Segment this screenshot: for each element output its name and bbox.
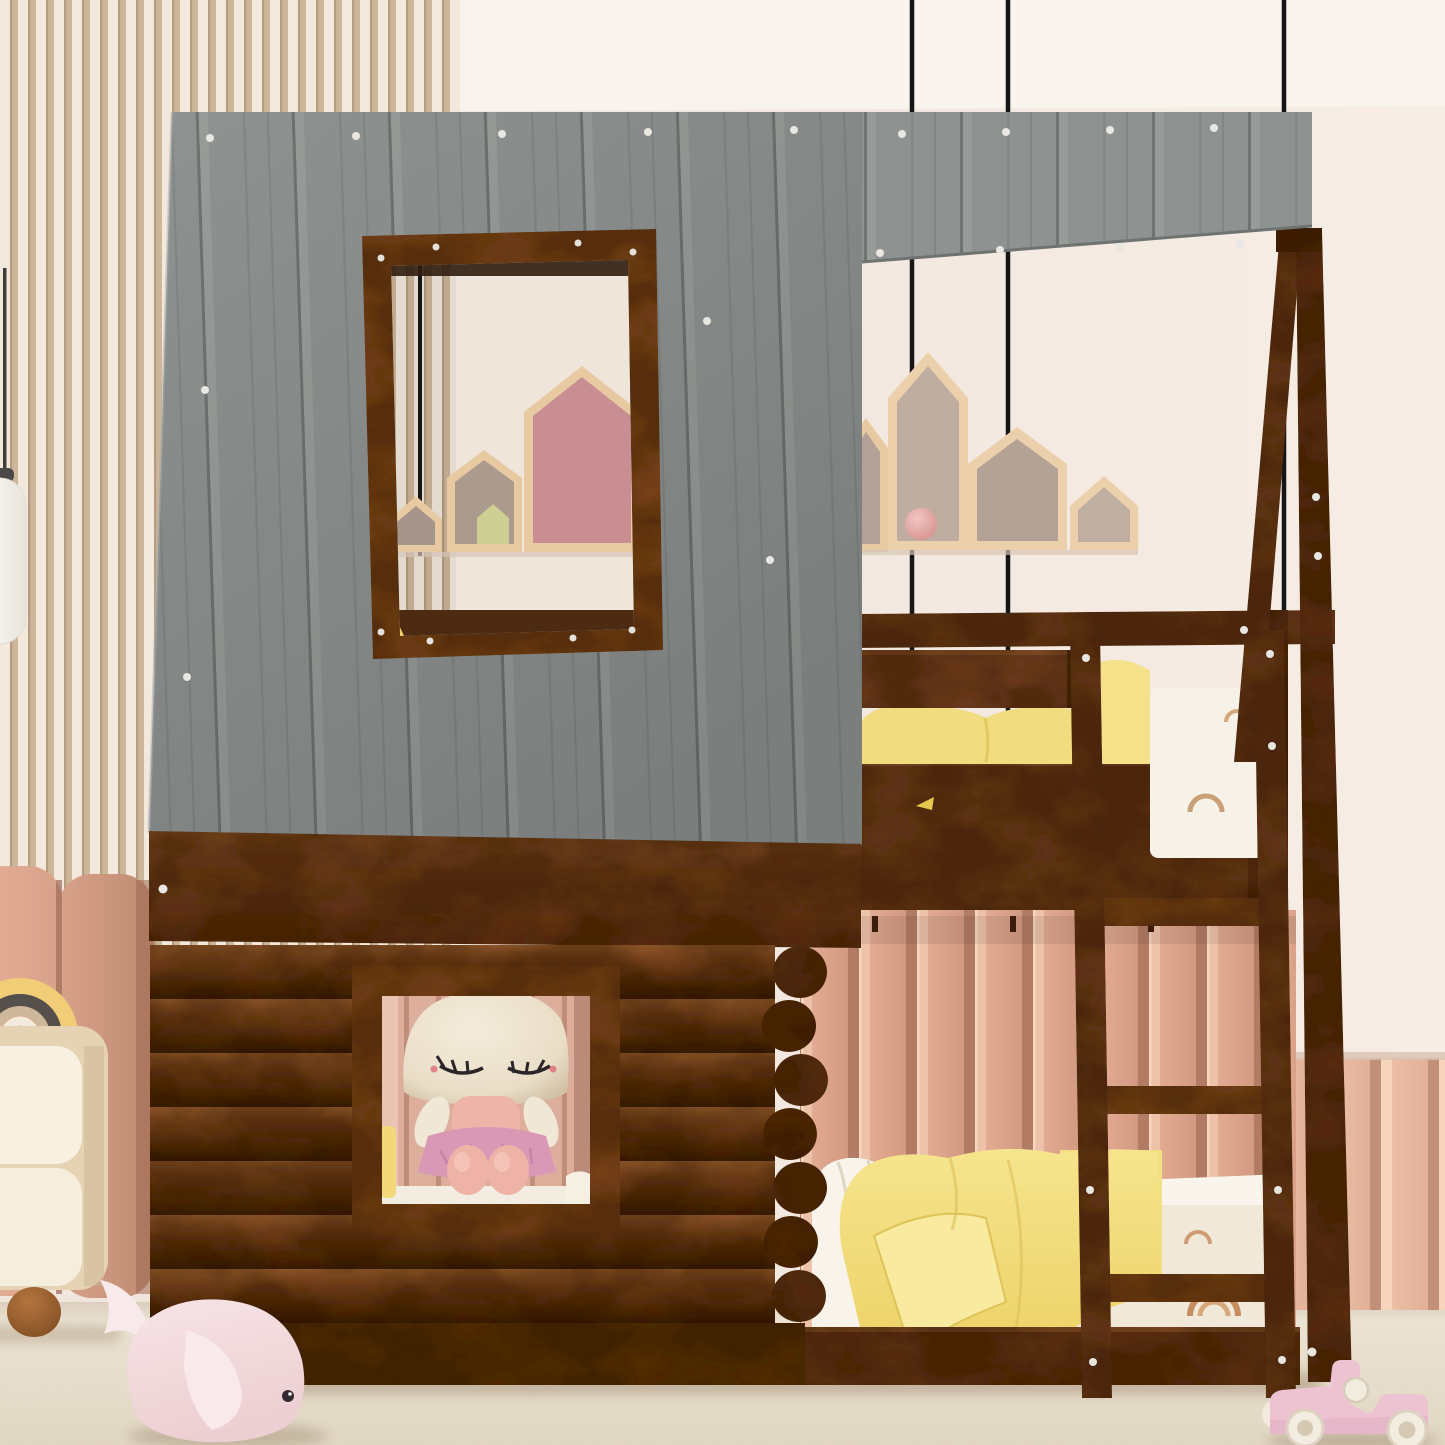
bottom-bunk-front-rail: [800, 1327, 1300, 1385]
pillow-peek: [566, 1171, 590, 1204]
ceiling: [330, 0, 1445, 112]
upper-window: [362, 229, 663, 659]
doll-foot-right: [487, 1145, 529, 1195]
lower-window-interior: [380, 989, 590, 1208]
lower-window: [352, 966, 620, 1232]
lamp-cord: [3, 268, 7, 482]
ladder-rung-1: [1098, 898, 1270, 926]
doll-foot-left: [447, 1145, 489, 1195]
screenshot-root: [0, 0, 1445, 1445]
whale-eye: [282, 1390, 294, 1402]
pink-ball: [905, 508, 937, 540]
car-steering-wheel: [1344, 1378, 1368, 1402]
shelf-shadow-line: [846, 550, 1138, 555]
plush-doll: [403, 989, 568, 1195]
room-photo: [0, 0, 1445, 1445]
ladder-rung-3: [1106, 1274, 1278, 1302]
fascia-screw: [159, 885, 168, 894]
yellow-blanket-peek: [380, 1126, 396, 1198]
bottom-bunk: [800, 910, 1296, 1336]
eave-fascia-board: [149, 831, 861, 948]
lamp-shade: [0, 478, 26, 644]
nightstand-ball-foot: [7, 1287, 61, 1337]
upper-window-interior: [388, 258, 640, 640]
nightstand-drawer-bottom: [0, 1168, 82, 1286]
ladder-rung-2: [1102, 1086, 1274, 1114]
nightstand-drawer-top: [0, 1046, 82, 1164]
top-bunk-guard-rail: [830, 650, 1076, 708]
